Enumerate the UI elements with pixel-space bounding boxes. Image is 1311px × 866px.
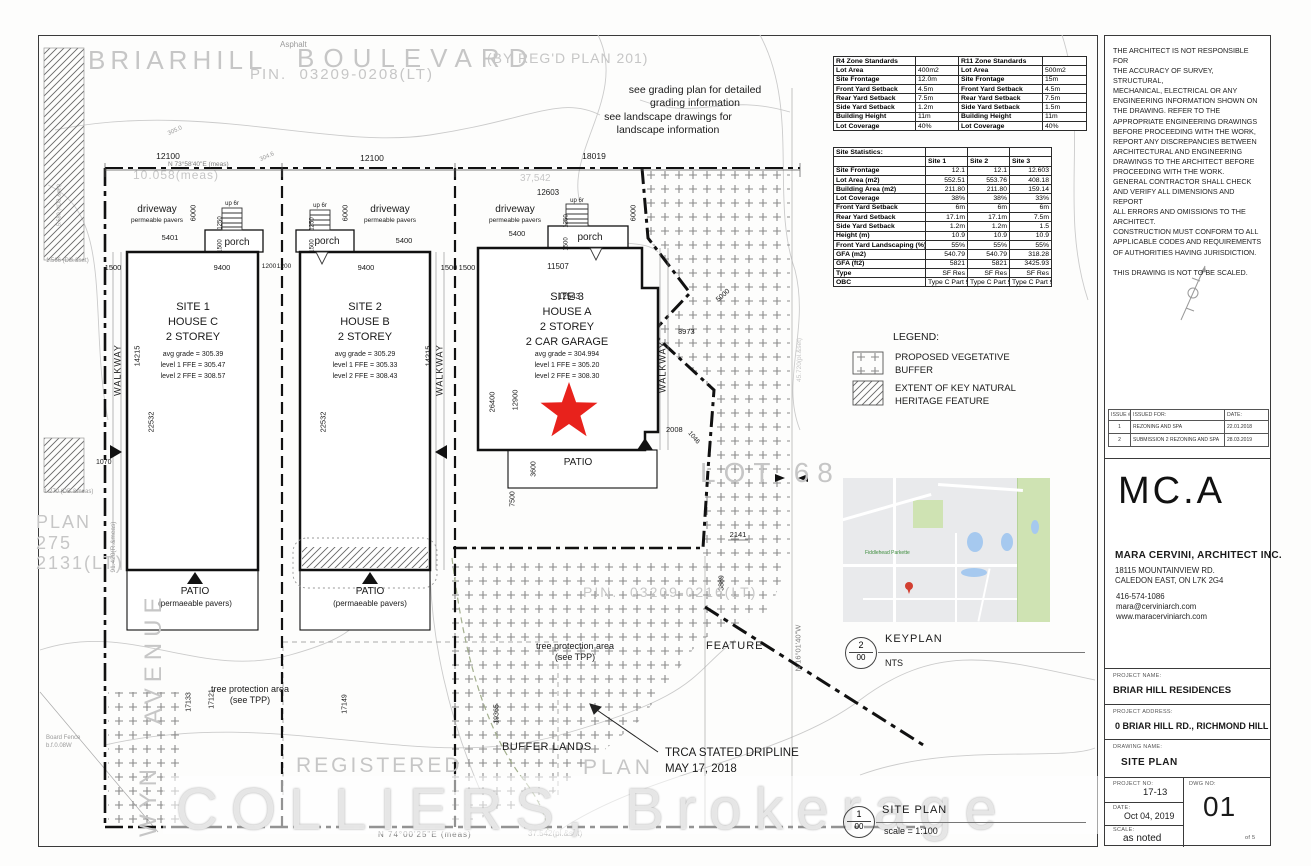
dim-label: 5401: [162, 233, 179, 242]
table-row: Side Yard Setback1.5m: [959, 103, 1087, 112]
table-cell: 11m: [916, 112, 959, 121]
table-cell: 318.28: [1010, 250, 1052, 259]
tree-protection-label: tree protection area (see TPP): [536, 641, 614, 664]
db-set-top-label: 5.580 (4DB.&set): [57, 184, 64, 226]
wyn-label: WYN: [134, 763, 164, 837]
table-cell: 40%: [1043, 122, 1087, 131]
column-header: DATE:: [1225, 410, 1269, 421]
title-block: THE ARCHITECT IS NOT RESPONSIBLE FOR THE…: [1104, 35, 1271, 846]
table-row: Height (m)10.910.910.9: [834, 231, 1052, 240]
dim-label: 1200: [277, 263, 291, 271]
disclaimer-text: THE ARCHITECT IS NOT RESPONSIBLE FOR THE…: [1113, 46, 1265, 278]
table-cell: 10.9: [1010, 231, 1052, 240]
trca-dripline-label: TRCA STATED DRIPLINE MAY 17, 2018: [665, 745, 799, 777]
walkway-label: WALKWAY: [112, 344, 123, 396]
walkway-label: WALKWAY: [434, 344, 445, 396]
table-cell: SF Res: [1010, 268, 1052, 277]
bearing-right-label: N 16°01'40"W: [793, 625, 802, 672]
heritage-hatch-area: [44, 48, 84, 492]
table-cell: [916, 57, 959, 66]
firm-name: MARA CERVINI, ARCHITECT INC.: [1115, 550, 1282, 563]
table-cell: 4.5m: [1043, 84, 1087, 93]
siteplan-ref-bubble: 1 00: [843, 806, 875, 838]
column-header: Site 2: [968, 157, 1010, 166]
site1-grades: avg grade = 305.39 level 1 FFE = 305.47 …: [161, 350, 226, 383]
drawing-name-label: DRAWING NAME:: [1113, 744, 1162, 751]
dwg-no-label: DWG NO:: [1189, 781, 1216, 788]
dim-label: 2008: [666, 425, 683, 434]
dim-label: 1500: [309, 239, 317, 252]
table-cell: GFA (m2): [834, 250, 926, 259]
site2-title: SITE 2 HOUSE B 2 STOREY: [338, 300, 392, 345]
project-address: 0 BRIAR HILL RD., RICHMOND HILL: [1115, 721, 1268, 732]
table-cell: GFA (ft2): [834, 259, 926, 268]
table-cell: Lot Coverage: [834, 122, 916, 131]
table-row: Front Yard Setback4.5m: [834, 84, 959, 93]
dim-label: 9400: [214, 263, 231, 272]
dim-label: 14215: [423, 346, 432, 367]
dim-label: 7500: [510, 491, 519, 507]
table-title: R11 Zone Standards: [959, 57, 1043, 66]
table-cell: 12.1: [968, 166, 1010, 175]
firm-logo: MC.A: [1118, 468, 1225, 516]
r4-zone-table: R4 Zone Standards Lot Area400m2Site Fron…: [833, 56, 959, 131]
table-cell: 55%: [968, 240, 1010, 249]
legend-item-buffer: PROPOSED VEGETATIVE BUFFER: [895, 352, 1010, 378]
dim-label: 9400: [358, 263, 375, 272]
dim-label: 26400: [487, 392, 496, 413]
column-header: ISSUE #: [1109, 410, 1131, 421]
table-cell: Front Yard Landscaping (%): [834, 240, 926, 249]
table-cell: OBC: [834, 278, 926, 287]
dim-label: 1200: [262, 263, 276, 271]
site3-title: SITE 3 HOUSE A 2 STOREY 2 CAR GARAGE: [526, 290, 609, 349]
table-cell: 15m: [1043, 75, 1087, 84]
site2-hatch-strip: [302, 547, 428, 568]
table-cell: 408.18: [1010, 175, 1052, 184]
dim-label: 1500: [105, 263, 122, 272]
table-row: Side Yard Setback1.2m1.2m1.5: [834, 222, 1052, 231]
street-pin: PIN. 03209-0208(LT): [250, 66, 434, 85]
table-cell: [1043, 57, 1087, 66]
table-cell: Rear Yard Setback: [959, 94, 1043, 103]
table-cell: 55%: [1010, 240, 1052, 249]
dim-label: 6000: [628, 205, 637, 222]
table-cell: 38%: [968, 194, 1010, 203]
porch-label: porch: [577, 232, 602, 245]
map-parkette-label: Fiddlehead Parkette: [865, 550, 910, 556]
divider: [1105, 668, 1270, 669]
divider: [1105, 704, 1270, 705]
dim-label: 12100: [360, 153, 384, 164]
dim-label: 1250: [563, 214, 571, 227]
ref-number: 1: [844, 809, 874, 819]
map-pin-tail: [907, 588, 911, 594]
firm-phone: 416-574-1086: [1116, 592, 1165, 602]
firm-email: mara@cerviniarch.com: [1116, 602, 1196, 612]
table-cell: 1.5m: [1043, 103, 1087, 112]
dim-label: 22532: [318, 412, 327, 433]
table-cell: [834, 157, 926, 166]
table-cell: Rear Yard Setback: [834, 94, 916, 103]
keyplan-title: KEYPLAN: [885, 633, 943, 647]
table-cell: Side Yard Setback: [834, 103, 916, 112]
column-header: ISSUED FOR:: [1131, 410, 1225, 421]
site3-grades: avg grade = 304.994 level 1 FFE = 305.20…: [535, 350, 600, 383]
scale-value: as noted: [1123, 833, 1161, 846]
table-row: R11 Zone Standards: [959, 57, 1087, 66]
table-cell: Site Frontage: [834, 75, 916, 84]
table-row: Building Area (m2)211.80211.80159.14: [834, 185, 1052, 194]
driveway-label: driveway: [495, 204, 534, 217]
table-cell: 1.2m: [968, 222, 1010, 231]
site2-grades: avg grade = 305.29 level 1 FFE = 305.33 …: [333, 350, 398, 383]
divider: [1105, 825, 1183, 826]
table-cell: 3425.93: [1010, 259, 1052, 268]
table-row: Building Height11m: [959, 112, 1087, 121]
table-cell: 55%: [926, 240, 968, 249]
dim-label: 1070: [96, 459, 112, 468]
table-cell: SF Res: [968, 268, 1010, 277]
dwg-no: 01: [1203, 789, 1236, 824]
dim-label: 1500: [217, 239, 225, 252]
divider: [1183, 777, 1184, 847]
table-cell: 400m2: [916, 66, 959, 75]
patio-pavers-label: (permaeable pavers): [333, 599, 407, 609]
dim-label: 14215: [132, 346, 141, 367]
table-cell: 552.51: [926, 175, 968, 184]
table-cell: Lot Coverage: [959, 122, 1043, 131]
table-row: Site Frontage12.112.112.603: [834, 166, 1052, 175]
site-plan-sheet: BRIARHILL BOULEVARD (BY REG'D PLAN 201) …: [0, 0, 1311, 866]
pavers-label: permeable pavers: [489, 217, 541, 225]
pavers-label: permeable pavers: [364, 217, 416, 225]
dim-label: 17149: [342, 694, 351, 713]
r11-zone-table: R11 Zone Standards Lot Area500m2Site Fro…: [958, 56, 1087, 131]
table-cell: 40%: [916, 122, 959, 131]
divider: [1105, 739, 1270, 740]
table-cell: Type C Part 9: [926, 278, 968, 287]
pavers-label: permeable pavers: [131, 217, 183, 225]
table-cell: SUBMISSION 2 REZONING AND SPA: [1131, 434, 1225, 447]
table-cell: Lot Area: [834, 66, 916, 75]
table-row: Lot Area (m2)552.51553.76408.18: [834, 175, 1052, 184]
table-row: Lot Area400m2: [834, 66, 959, 75]
table-row: TypeSF ResSF ResSF Res: [834, 268, 1052, 277]
landscape-note: see landscape drawings for landscape inf…: [604, 111, 732, 137]
dim-label: 17133: [186, 692, 195, 711]
table-cell: 17.1m: [968, 213, 1010, 222]
table-title: Site Statistics:: [834, 148, 926, 157]
table-cell: 211.80: [968, 185, 1010, 194]
project-name-label: PROJECT NAME:: [1113, 673, 1161, 680]
map-pond: [1031, 520, 1039, 534]
column-header: Site 1: [926, 157, 968, 166]
table-cell: Site Frontage: [834, 166, 926, 175]
table-cell: Height (m): [834, 231, 926, 240]
ref-number: 2: [846, 640, 876, 650]
table-cell: 1: [1109, 421, 1131, 434]
table-cell: Type C Part 9: [1010, 278, 1052, 287]
table-row: GFA (ft2)582158213425.93: [834, 259, 1052, 268]
dim-label: 5400: [509, 229, 526, 238]
divider: [1105, 458, 1270, 459]
drawing-name: SITE PLAN: [1121, 757, 1178, 770]
table-row: Rear Yard Setback17.1m17.1m7.5m: [834, 213, 1052, 222]
table-row: Building Height11m: [834, 112, 959, 121]
dim-label: 2141: [730, 530, 747, 539]
sheet-count: of 5: [1245, 835, 1255, 842]
table-cell: 4.5m: [916, 84, 959, 93]
board-fence-label: Board Fence b.f.0.08W: [46, 735, 80, 750]
map-road: [843, 564, 1017, 567]
table-cell: Building Area (m2): [834, 185, 926, 194]
table-row: 1REZONING AND SPA22.01.2018: [1109, 421, 1269, 434]
table-cell: Side Yard Setback: [959, 103, 1043, 112]
table-cell: Building Height: [834, 112, 916, 121]
table-row: 2SUBMISSION 2 REZONING AND SPA28.03.2019: [1109, 434, 1269, 447]
divider: [1105, 802, 1183, 803]
porch-label: porch: [224, 237, 249, 250]
table-cell: 500m2: [1043, 66, 1087, 75]
table-cell: 5821: [926, 259, 968, 268]
up6r-label: up 6r: [570, 198, 584, 206]
table-row: Front Yard Landscaping (%)55%55%55%: [834, 240, 1052, 249]
table-cell: 7.5m: [1043, 94, 1087, 103]
table-cell: Type C Part 9: [968, 278, 1010, 287]
dim-label: 6000: [188, 205, 197, 222]
table-cell: 6m: [968, 203, 1010, 212]
table-row: Lot Coverage38%38%33%: [834, 194, 1052, 203]
meas-37542-top: 37,542: [520, 173, 551, 186]
table-cell: 553.76: [968, 175, 1010, 184]
table-cell: Rear Yard Setback: [834, 213, 926, 222]
lot-68-label: LOT 68: [700, 455, 841, 490]
table-cell: Front Yard Setback: [959, 84, 1043, 93]
driveway-label: driveway: [137, 204, 176, 217]
project-address-label: PROJECT ADDRESS:: [1113, 709, 1173, 716]
map-pond: [961, 568, 987, 577]
table-cell: 17.1m: [926, 213, 968, 222]
map-road: [955, 533, 957, 622]
table-cell: 38%: [926, 194, 968, 203]
keyplan-ref-bubble: 2 00: [845, 637, 877, 669]
dim-label: 6000: [340, 205, 349, 222]
map-road: [938, 483, 1023, 491]
project-name: BRIAR HILL RESIDENCES: [1113, 685, 1231, 697]
dim-label: 1500: [563, 237, 571, 250]
table-row: Lot Coverage40%: [834, 122, 959, 131]
table-cell: 22.01.2018: [1225, 421, 1269, 434]
meas-10058: 10.058(meas): [133, 168, 219, 183]
keyplan-map: Fiddlehead Parkette: [843, 478, 1050, 622]
column-header: Site 3: [1010, 157, 1052, 166]
table-cell: Lot Coverage: [834, 194, 926, 203]
firm-website: www.maracerviniarch.com: [1116, 612, 1207, 622]
table-cell: 28.03.2019: [1225, 434, 1269, 447]
table-row: OBCType C Part 9Type C Part 9Type C Part…: [834, 278, 1052, 287]
table-row: Site Frontage15m: [959, 75, 1087, 84]
patio-label: PATIO: [181, 586, 210, 599]
map-park: [913, 500, 943, 528]
divider: [1105, 777, 1270, 778]
table-cell: 10.9: [968, 231, 1010, 240]
dim-label: 12900: [510, 390, 519, 411]
table-cell: 12.1: [926, 166, 968, 175]
table-cell: Lot Area: [959, 66, 1043, 75]
buffer-lands-label: BUFFER LANDS: [502, 741, 592, 755]
porch-label: porch: [314, 236, 339, 249]
avenue-label: AVENUE: [139, 592, 169, 725]
patio-label: PATIO: [356, 586, 385, 599]
table-title: R4 Zone Standards: [834, 57, 916, 66]
project-no: 17-13: [1143, 787, 1167, 799]
pin-bottom: PIN. 03209-0216(LT): [583, 584, 757, 602]
table-row: GFA (m2)540.79540.79318.28: [834, 250, 1052, 259]
patio-pavers-label: (permaeable pavers): [158, 599, 232, 609]
dim-label: 3973: [678, 327, 695, 336]
table-cell: 7.5m: [1010, 213, 1052, 222]
table-cell: 2: [1109, 434, 1131, 447]
table-cell: 7.5m: [916, 94, 959, 103]
r-meas-label: 91.420(R.&meas): [110, 522, 118, 573]
ref-divider: [878, 652, 1085, 653]
street-regd-plan: (BY REG'D PLAN 201): [487, 50, 648, 68]
table-cell: 33%: [1010, 194, 1052, 203]
driveway-label: driveway: [370, 204, 409, 217]
table-cell: 6m: [1010, 203, 1052, 212]
dim-label: 5400: [396, 236, 413, 245]
date-value: Oct 04, 2019: [1124, 811, 1174, 822]
dim-label: 12603: [537, 188, 559, 198]
siteplan-scale: scale = 1:100: [884, 826, 938, 837]
table-row: Front Yard Setback4.5m: [959, 84, 1087, 93]
table-cell: 5821: [968, 259, 1010, 268]
tree-protection-label: tree protection area (see TPP): [211, 684, 289, 707]
table-row: Front Yard Setback6m6m6m: [834, 203, 1052, 212]
db-set-label: 1.566 (DB.&set): [46, 258, 89, 266]
table-row: Lot Coverage40%: [959, 122, 1087, 131]
walkway-label: WALKWAY: [657, 341, 668, 393]
dim-label: 18019: [582, 151, 606, 162]
table-cell: [926, 148, 968, 157]
table-row: Site Frontage12.0m: [834, 75, 959, 84]
dim-label: 22532: [146, 412, 155, 433]
firm-address-1: 18115 MOUNTAINVIEW RD.: [1115, 566, 1215, 576]
table-cell: 6m: [926, 203, 968, 212]
table-cell: 159.14: [1010, 185, 1052, 194]
dim-label: 1500: [459, 263, 476, 272]
table-cell: 10.9: [926, 231, 968, 240]
table-cell: SF Res: [926, 268, 968, 277]
table-cell: Type: [834, 268, 926, 277]
patio-label: PATIO: [564, 457, 593, 470]
table-row: Site Statistics:: [834, 148, 1052, 157]
table-cell: 540.79: [968, 250, 1010, 259]
up6r-label: up 6r: [225, 201, 239, 209]
table-cell: Front Yard Setback: [834, 84, 916, 93]
db-meas-label: 1.270 (DB.&meas): [44, 489, 93, 497]
table-row: Rear Yard Setback7.5m: [834, 94, 959, 103]
legend-swatches: [853, 352, 883, 405]
table-cell: 1.2m: [916, 103, 959, 112]
asphalt-label: Asphalt: [280, 40, 307, 50]
table-cell: Building Height: [959, 112, 1043, 121]
up6r-label: up 6r: [313, 203, 327, 211]
dim-label: 1250: [309, 217, 317, 230]
keyplan-scale: NTS: [885, 658, 903, 669]
ref-divider: [876, 822, 1086, 823]
firm-address-2: CALEDON EAST, ON L7K 2G4: [1115, 576, 1223, 586]
table-row: R4 Zone Standards: [834, 57, 959, 66]
table-cell: 11m: [1043, 112, 1087, 121]
map-road: [863, 598, 1017, 600]
table-cell: [1010, 148, 1052, 157]
table-cell: 12.0m: [916, 75, 959, 84]
table-cell: REZONING AND SPA: [1131, 421, 1225, 434]
table-cell: 12.603: [1010, 166, 1052, 175]
table-cell: Front Yard Setback: [834, 203, 926, 212]
table-row: Side Yard Setback1.2m: [834, 103, 959, 112]
map-greenbelt: [1017, 478, 1050, 622]
issue-table: ISSUE # ISSUED FOR: DATE: 1REZONING AND …: [1108, 409, 1269, 447]
table-row: ISSUE # ISSUED FOR: DATE:: [1109, 410, 1269, 421]
street-name-briarhill: BRIARHILL: [88, 44, 267, 77]
table-row: Rear Yard Setback7.5m: [959, 94, 1087, 103]
table-cell: 1.5: [1010, 222, 1052, 231]
pl-set-right-label: 45.720(pl.&set): [796, 338, 804, 382]
dim-label: 1250: [217, 216, 225, 229]
table-row: Site 1 Site 2 Site 3: [834, 157, 1052, 166]
ref-sheet: 00: [849, 652, 873, 662]
legend-item-heritage: EXTENT OF KEY NATURAL HERITAGE FEATURE: [895, 383, 1016, 409]
site-statistics-table: Site Statistics: Site 1 Site 2 Site 3 Si…: [833, 147, 1052, 287]
table-row: Lot Area500m2: [959, 66, 1087, 75]
map-pond: [1001, 533, 1013, 551]
dim-label: 1500: [441, 263, 458, 272]
dim-label: 11507: [547, 262, 569, 272]
table-cell: 1.2m: [926, 222, 968, 231]
siteplan-title: SITE PLAN: [882, 804, 947, 818]
table-cell: Site Frontage: [959, 75, 1043, 84]
table-cell: Lot Area (m2): [834, 175, 926, 184]
map-pond: [967, 532, 983, 552]
table-cell: [968, 148, 1010, 157]
feature-label: FEATURE: [706, 640, 764, 654]
grading-note: see grading plan for detailed grading in…: [629, 84, 762, 110]
ref-sheet: 00: [847, 821, 871, 831]
table-cell: 211.80: [926, 185, 968, 194]
table-cell: Side Yard Setback: [834, 222, 926, 231]
table-cell: 540.79: [926, 250, 968, 259]
legend-title: LEGEND:: [893, 331, 939, 344]
dim-label: 19365: [494, 704, 503, 723]
site1-title: SITE 1 HOUSE C 2 STOREY: [166, 300, 220, 345]
dim-label: 3600: [531, 461, 540, 477]
